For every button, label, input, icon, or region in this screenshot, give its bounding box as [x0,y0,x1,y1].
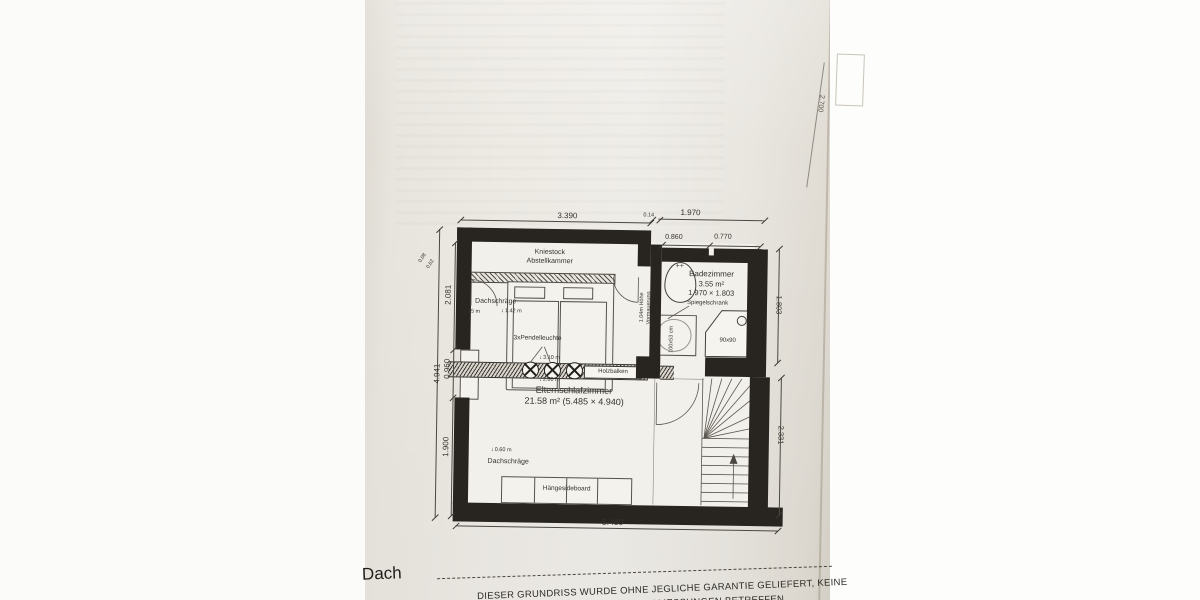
dimension-label: 0.14 [643,212,654,219]
floor-plan: Holzbalken ++ 100x53 cm 90x90 [417,197,822,548]
height-label: 2.60 m [539,377,560,385]
label-vormauerung-2: Vormauerung [646,268,653,324]
room-label-bathroom: Badezimmer 3.55 m² 1.970 × 1.803 [666,269,756,299]
dimension-label: 0.860 [665,234,683,243]
dimension-label: 4.941 [432,354,442,394]
stair-direction-arrow [730,454,738,464]
photo-of-floorplan-document: { "plan": { "rooms": { "abstellkammer": … [0,0,1200,600]
dimension-label: 1.970 [680,208,700,218]
label-dachschraege-bottom: Dachschräge [487,458,528,467]
label-vormauerung-1: 1.04m Höhe [639,266,646,322]
height-label: 3.10 m [539,355,560,363]
sideboard-label: Hängesideboard [502,484,631,493]
sideboard: Hängesideboard [501,476,632,505]
bleed-through-texture [395,0,725,225]
dimension-label: 2.081 [443,275,453,315]
dimension-label: 2.331 [776,415,786,455]
height-label: 1.42 m [501,308,522,316]
label-dachschraege-top: Dachschräge [475,298,516,307]
dimension-label: 1.803 [774,285,784,325]
background-beyond-paper [830,0,1200,600]
height-label: 25 m [464,309,480,317]
room-label-abstellkammer: Kniestock Abstellkammer [490,248,610,267]
label-spiegelschrank: Spiegelschrank [687,300,728,308]
footer-dach-label: Dach [362,563,402,584]
dimension-label: 1.900 [441,427,451,467]
room-area-bedroom: 21.58 m² (5.485 × 4.940) [524,396,623,409]
label-pendant: 3xPendelleuchte [513,334,561,343]
dimension-label: 0.770 [714,233,732,242]
dimension-label: 3.390 [537,211,597,222]
dimension-label: 0.960 [442,349,452,389]
underlying-sheet-corner [835,54,865,107]
height-label: 0.60 m [491,447,512,455]
dimension-label: 5.480 [583,516,643,528]
